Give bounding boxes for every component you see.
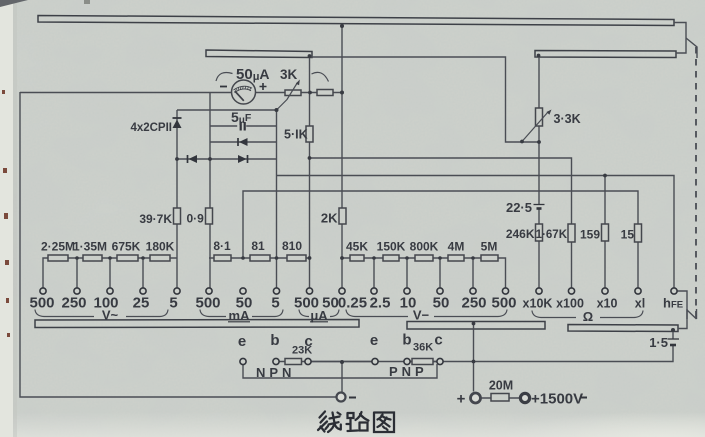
svg-text:810: 810 <box>282 239 302 253</box>
svg-text:4M: 4M <box>448 240 465 254</box>
svg-text:5·IK: 5·IK <box>284 128 308 142</box>
svg-text:e: e <box>238 333 246 350</box>
svg-text:50: 50 <box>433 295 450 312</box>
svg-text:3K: 3K <box>280 67 298 82</box>
svg-text:800K: 800K <box>410 240 439 254</box>
svg-text:675K: 675K <box>112 240 141 254</box>
svg-text:1·35M: 1·35M <box>73 240 107 254</box>
svg-text:Ω: Ω <box>583 309 593 324</box>
svg-text:159: 159 <box>580 228 600 242</box>
svg-text:0.25: 0.25 <box>338 295 367 312</box>
svg-text:45K: 45K <box>346 240 368 254</box>
svg-text:5: 5 <box>271 295 279 312</box>
svg-text:e: e <box>370 332 378 349</box>
svg-text:4x2CPII: 4x2CPII <box>130 122 172 134</box>
svg-text:0·9: 0·9 <box>187 212 205 226</box>
svg-text:1·67K: 1·67K <box>536 229 568 241</box>
svg-text:150K: 150K <box>377 240 406 254</box>
svg-text:2.5: 2.5 <box>370 295 391 312</box>
svg-text:25: 25 <box>133 295 150 312</box>
svg-text:NPN: NPN <box>256 365 295 380</box>
svg-text:36K: 36K <box>413 342 433 354</box>
svg-text:V−: V− <box>413 308 430 323</box>
svg-text:2K: 2K <box>321 211 338 226</box>
svg-text:x100: x100 <box>556 297 584 311</box>
svg-text:500: 500 <box>195 295 220 312</box>
svg-text:x10: x10 <box>597 297 618 311</box>
svg-text:500: 500 <box>491 295 516 312</box>
svg-text:mA: mA <box>229 308 251 323</box>
svg-text:250: 250 <box>461 295 486 312</box>
svg-text:PNP: PNP <box>389 364 428 379</box>
svg-text:2·25M: 2·25M <box>41 240 75 254</box>
svg-text:246K: 246K <box>506 227 535 241</box>
svg-text:250: 250 <box>61 295 86 312</box>
svg-text:+: + <box>457 391 466 408</box>
svg-text:+1500V: +1500V <box>531 391 583 408</box>
svg-text:x10K: x10K <box>523 297 553 311</box>
svg-text:180K: 180K <box>146 240 175 254</box>
svg-text:20M: 20M <box>489 379 513 393</box>
svg-text:c: c <box>304 333 312 350</box>
svg-text:b: b <box>402 332 411 349</box>
svg-text:8·1: 8·1 <box>213 239 231 253</box>
svg-text:5M: 5M <box>481 240 498 254</box>
svg-text:V~: V~ <box>102 308 119 323</box>
svg-text:15: 15 <box>621 228 635 242</box>
svg-text:5: 5 <box>169 295 177 312</box>
svg-text:b: b <box>270 332 279 349</box>
svg-text:1·5: 1·5 <box>649 335 668 350</box>
svg-text:81: 81 <box>251 239 265 253</box>
svg-text:22·5: 22·5 <box>506 200 532 215</box>
svg-text:3·3K: 3·3K <box>554 112 581 126</box>
svg-text:c: c <box>434 332 442 349</box>
svg-text:xl: xl <box>635 297 645 311</box>
svg-text:39·7K: 39·7K <box>139 212 172 226</box>
svg-text:μA: μA <box>310 308 328 323</box>
svg-text:500: 500 <box>29 295 54 312</box>
